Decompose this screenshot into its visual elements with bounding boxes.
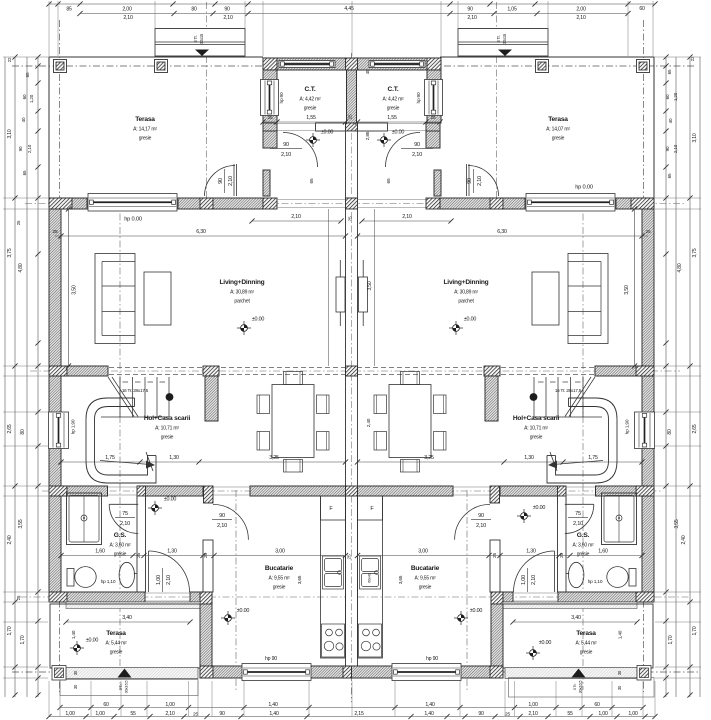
- svg-text:Hol+Casa scarii: Hol+Casa scarii: [513, 415, 560, 422]
- svg-text:4,45: 4,45: [344, 6, 354, 12]
- svg-text:3,65: 3,65: [398, 575, 404, 584]
- svg-text:1,40: 1,40: [269, 711, 279, 717]
- svg-text:A: 4,42 m²: A: 4,42 m²: [299, 97, 321, 103]
- svg-text:80: 80: [191, 7, 197, 13]
- svg-text:Living+Dinning: Living+Dinning: [443, 279, 488, 286]
- svg-text:1,20: 1,20: [673, 92, 678, 101]
- svg-text:30x15: 30x15: [199, 33, 204, 44]
- svg-text:6,30: 6,30: [196, 229, 206, 235]
- svg-text:65: 65: [667, 173, 672, 178]
- svg-text:gresie: gresie: [577, 552, 590, 558]
- svg-text:A: 14,07 m²: A: 14,07 m²: [546, 127, 570, 133]
- svg-text:1,40: 1,40: [618, 630, 624, 639]
- svg-text:25: 25: [431, 115, 436, 121]
- svg-text:25: 25: [193, 712, 198, 718]
- svg-text:hp 0.00: hp 0.00: [575, 185, 593, 191]
- svg-text:1,00: 1,00: [65, 711, 75, 717]
- svg-text:1,00: 1,00: [528, 702, 538, 708]
- svg-text:1,55: 1,55: [387, 115, 397, 121]
- svg-text:40: 40: [21, 117, 26, 122]
- svg-text:1,75: 1,75: [588, 455, 598, 461]
- svg-text:3 Tr.: 3 Tr.: [496, 35, 501, 42]
- svg-text:2,10: 2,10: [281, 152, 291, 158]
- svg-text:90: 90: [18, 146, 23, 151]
- svg-text:3,65: 3,65: [297, 575, 303, 584]
- svg-text:2,00: 2,00: [122, 7, 132, 13]
- svg-text:2,10: 2,10: [166, 575, 172, 585]
- svg-text:2,85: 2,85: [365, 131, 371, 140]
- svg-text:65: 65: [386, 178, 392, 183]
- svg-text:±0.00: ±0.00: [164, 497, 177, 503]
- svg-text:Terasa: Terasa: [135, 116, 155, 123]
- svg-text:75: 75: [122, 511, 128, 517]
- svg-text:Living+Dinning: Living+Dinning: [219, 279, 264, 286]
- svg-text:2,40: 2,40: [681, 535, 687, 544]
- svg-text:25: 25: [136, 553, 142, 558]
- svg-text:25: 25: [492, 553, 498, 558]
- svg-text:4,80: 4,80: [18, 263, 24, 272]
- svg-text:1,00: 1,00: [95, 711, 105, 717]
- svg-text:1,60: 1,60: [598, 549, 608, 555]
- svg-text:90: 90: [219, 711, 225, 717]
- svg-text:A: 4,42 m²: A: 4,42 m²: [382, 97, 404, 103]
- svg-text:25: 25: [53, 229, 58, 235]
- svg-text:80: 80: [20, 429, 26, 435]
- svg-text:2,10: 2,10: [573, 521, 583, 527]
- svg-text:G.S.: G.S.: [114, 532, 127, 539]
- svg-text:±0.00: ±0.00: [237, 608, 250, 614]
- svg-text:60: 60: [665, 94, 670, 99]
- svg-text:90: 90: [283, 142, 289, 148]
- svg-text:1,00: 1,00: [628, 711, 638, 717]
- svg-text:3,10: 3,10: [7, 129, 13, 138]
- svg-text:1,40: 1,40: [268, 702, 278, 708]
- svg-text:2,10: 2,10: [531, 575, 537, 585]
- svg-text:60: 60: [22, 94, 27, 99]
- svg-text:±0.00: ±0.00: [86, 638, 99, 644]
- svg-text:Bucatarie: Bucatarie: [265, 565, 294, 572]
- svg-text:90: 90: [414, 142, 420, 148]
- svg-text:C.T.: C.T.: [305, 86, 316, 93]
- svg-text:90: 90: [665, 146, 670, 151]
- svg-text:3,00: 3,00: [275, 549, 285, 555]
- svg-text:±0.00: ±0.00: [464, 317, 477, 323]
- svg-text:C.T.: C.T.: [388, 86, 399, 93]
- svg-text:3,00: 3,00: [418, 549, 428, 555]
- svg-text:1,00: 1,00: [156, 575, 162, 585]
- svg-text:90: 90: [219, 513, 225, 519]
- svg-text:1,40: 1,40: [71, 630, 77, 639]
- svg-text:85: 85: [66, 7, 72, 13]
- svg-text:65: 65: [309, 178, 315, 183]
- svg-text:gresie: gresie: [273, 585, 286, 591]
- svg-text:2,10: 2,10: [576, 15, 586, 21]
- svg-text:25: 25: [348, 216, 354, 221]
- svg-text:22: 22: [7, 57, 12, 62]
- svg-text:3 Tr.: 3 Tr.: [193, 35, 198, 42]
- svg-text:A: 14,17 m²: A: 14,17 m²: [133, 127, 157, 133]
- svg-text:65: 65: [667, 69, 672, 74]
- svg-text:1,55: 1,55: [306, 115, 316, 121]
- svg-text:A: 3,60 m²: A: 3,60 m²: [109, 543, 131, 549]
- svg-text:90: 90: [478, 513, 484, 519]
- svg-text:parchet: parchet: [458, 299, 474, 305]
- svg-text:A: 5,44 m²: A: 5,44 m²: [575, 641, 597, 647]
- svg-text:2,65: 2,65: [7, 424, 13, 433]
- svg-text:60: 60: [594, 702, 600, 708]
- svg-text:2,10: 2,10: [476, 523, 486, 529]
- svg-text:2,15: 2,15: [354, 711, 364, 717]
- svg-text:1,75: 1,75: [105, 455, 115, 461]
- svg-text:hp 1,90: hp 1,90: [625, 419, 631, 434]
- svg-text:3,55: 3,55: [674, 519, 680, 528]
- svg-text:2,10: 2,10: [402, 214, 412, 220]
- svg-text:2,10: 2,10: [27, 144, 32, 153]
- svg-text:gresie: gresie: [110, 650, 123, 656]
- svg-text:3 Tr.: 3 Tr.: [118, 683, 123, 690]
- svg-text:1,00: 1,00: [165, 702, 175, 708]
- svg-text:30x16,5: 30x16,5: [124, 680, 129, 694]
- svg-text:±0.00: ±0.00: [321, 130, 334, 136]
- svg-text:2,10: 2,10: [673, 144, 678, 153]
- svg-text:60x40: 60x40: [368, 573, 372, 582]
- svg-text:2,10: 2,10: [528, 711, 538, 717]
- svg-text:hp 1,10: hp 1,10: [588, 579, 603, 585]
- svg-text:25: 25: [347, 554, 353, 559]
- svg-text:25: 25: [16, 220, 21, 225]
- svg-text:1,70: 1,70: [20, 635, 26, 644]
- svg-text:90: 90: [224, 7, 230, 13]
- svg-text:G.S.: G.S.: [577, 532, 590, 539]
- svg-text:16 Tr. 28x17,5: 16 Tr. 28x17,5: [122, 388, 149, 393]
- svg-text:A: 10,71 m²: A: 10,71 m²: [155, 426, 179, 432]
- svg-text:3,50: 3,50: [367, 281, 373, 290]
- svg-text:2,00: 2,00: [576, 7, 586, 13]
- svg-text:gresie: gresie: [419, 585, 432, 591]
- svg-text:Terasa: Terasa: [576, 630, 596, 637]
- svg-text:3 Tr.: 3 Tr.: [572, 683, 577, 690]
- svg-text:1,00: 1,00: [521, 575, 527, 585]
- svg-text:2,10: 2,10: [291, 214, 301, 220]
- svg-text:40: 40: [668, 118, 673, 123]
- svg-text:2,10: 2,10: [223, 15, 233, 21]
- svg-text:1,30: 1,30: [526, 549, 536, 555]
- svg-text:1,40: 1,40: [424, 711, 434, 717]
- svg-text:hp 90: hp 90: [265, 656, 277, 662]
- svg-text:3,50: 3,50: [72, 285, 78, 295]
- svg-text:A: 9,55 m²: A: 9,55 m²: [268, 576, 290, 582]
- svg-text:3,10: 3,10: [692, 133, 698, 142]
- svg-text:3,55: 3,55: [18, 519, 24, 528]
- svg-text:2,10: 2,10: [217, 523, 227, 529]
- svg-text:1,40: 1,40: [425, 702, 435, 708]
- svg-text:hp 1,10: hp 1,10: [101, 579, 116, 585]
- svg-text:90: 90: [467, 178, 473, 184]
- svg-text:25: 25: [646, 229, 651, 235]
- svg-text:gresie: gresie: [304, 106, 317, 112]
- svg-text:gresie: gresie: [530, 435, 543, 441]
- svg-text:2,10: 2,10: [123, 15, 133, 21]
- svg-text:25: 25: [348, 114, 354, 119]
- svg-text:±0.00: ±0.00: [392, 130, 405, 136]
- svg-text:1,05: 1,05: [507, 7, 517, 13]
- svg-text:Bucatarie: Bucatarie: [411, 565, 440, 572]
- svg-text:parchet: parchet: [234, 299, 250, 305]
- svg-text:80: 80: [667, 429, 673, 435]
- svg-text:gresie: gresie: [387, 106, 400, 112]
- svg-text:±0.00: ±0.00: [533, 505, 546, 511]
- svg-text:3,75: 3,75: [7, 248, 13, 257]
- svg-text:25: 25: [505, 712, 510, 718]
- svg-text:1,70: 1,70: [692, 626, 698, 635]
- svg-text:gresie: gresie: [114, 552, 127, 558]
- svg-text:2,10: 2,10: [165, 711, 175, 717]
- svg-text:A: 30,89 m²: A: 30,89 m²: [454, 290, 478, 296]
- svg-text:±0.00: ±0.00: [252, 317, 265, 323]
- svg-text:gresie: gresie: [580, 650, 593, 656]
- svg-text:3,25: 3,25: [269, 455, 279, 461]
- svg-text:2,40: 2,40: [366, 418, 372, 427]
- svg-text:gresie: gresie: [552, 136, 565, 142]
- svg-text:90: 90: [218, 178, 224, 184]
- svg-text:55: 55: [130, 711, 136, 717]
- svg-text:±0.00: ±0.00: [470, 608, 483, 614]
- svg-text:75: 75: [575, 511, 581, 517]
- svg-text:A: 9,55 m²: A: 9,55 m²: [414, 576, 436, 582]
- svg-text:gresie: gresie: [161, 435, 174, 441]
- svg-text:1,30: 1,30: [167, 549, 177, 555]
- svg-text:±0.00: ±0.00: [539, 640, 552, 646]
- svg-text:1,20: 1,20: [29, 94, 34, 103]
- svg-text:2,10: 2,10: [120, 521, 130, 527]
- svg-text:2,40: 2,40: [7, 535, 13, 544]
- svg-text:3,40: 3,40: [571, 615, 581, 621]
- svg-text:1,70: 1,70: [7, 626, 13, 635]
- svg-text:3,40: 3,40: [122, 615, 132, 621]
- svg-text:2,65: 2,65: [692, 424, 698, 433]
- svg-text:4,80: 4,80: [677, 263, 683, 272]
- svg-text:hp 1,90: hp 1,90: [71, 419, 77, 434]
- svg-text:Terasa: Terasa: [106, 630, 126, 637]
- svg-text:30x15: 30x15: [502, 33, 507, 44]
- svg-text:16 Tr. 28x17,5: 16 Tr. 28x17,5: [555, 388, 582, 393]
- svg-text:25: 25: [559, 553, 565, 558]
- svg-text:1,30: 1,30: [524, 455, 534, 461]
- svg-text:hp 90: hp 90: [416, 92, 422, 104]
- svg-text:hp 90: hp 90: [279, 92, 285, 104]
- svg-text:3,75: 3,75: [692, 248, 698, 257]
- svg-text:60: 60: [639, 6, 645, 12]
- svg-text:65: 65: [25, 72, 30, 77]
- svg-text:60: 60: [103, 702, 109, 708]
- svg-text:2,10: 2,10: [467, 15, 477, 21]
- svg-text:45: 45: [365, 69, 370, 74]
- svg-text:3,25: 3,25: [424, 455, 434, 461]
- svg-text:25: 25: [268, 115, 273, 121]
- svg-text:30x16,5: 30x16,5: [578, 680, 583, 694]
- svg-text:Hol+Casa scarii: Hol+Casa scarii: [144, 415, 191, 422]
- svg-text:90: 90: [478, 711, 484, 717]
- svg-text:2,10: 2,10: [412, 152, 422, 158]
- svg-text:A: 3,60 m²: A: 3,60 m²: [572, 543, 594, 549]
- svg-text:1,70: 1,70: [668, 635, 674, 644]
- svg-text:90: 90: [467, 7, 473, 13]
- svg-text:2,10: 2,10: [228, 176, 234, 186]
- svg-text:1,60: 1,60: [95, 549, 105, 555]
- svg-text:1,30: 1,30: [169, 455, 179, 461]
- svg-text:hp 0.00: hp 0.00: [124, 217, 142, 223]
- svg-text:Terasa: Terasa: [548, 116, 568, 123]
- svg-text:65: 65: [22, 170, 27, 175]
- svg-text:A: 5,44 m²: A: 5,44 m²: [105, 641, 127, 647]
- svg-text:25: 25: [203, 553, 209, 558]
- svg-text:A: 30,89 m²: A: 30,89 m²: [230, 290, 254, 296]
- svg-text:55: 55: [567, 711, 573, 717]
- svg-text:hp 90: hp 90: [426, 656, 438, 662]
- svg-text:6,30: 6,30: [497, 229, 507, 235]
- svg-text:1,00: 1,00: [598, 711, 608, 717]
- svg-text:gresie: gresie: [139, 136, 152, 142]
- svg-text:A: 10,71 m²: A: 10,71 m²: [524, 426, 548, 432]
- svg-text:3,50: 3,50: [624, 285, 630, 295]
- svg-text:25: 25: [16, 595, 21, 600]
- svg-text:2,10: 2,10: [477, 176, 483, 186]
